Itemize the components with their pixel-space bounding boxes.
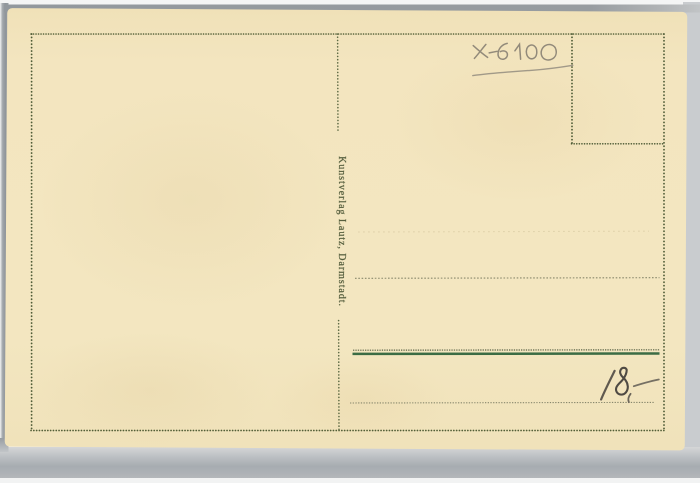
svg-text:Kunstverlag Lautz, Darmstadt.: Kunstverlag Lautz, Darmstadt. [336,156,347,307]
